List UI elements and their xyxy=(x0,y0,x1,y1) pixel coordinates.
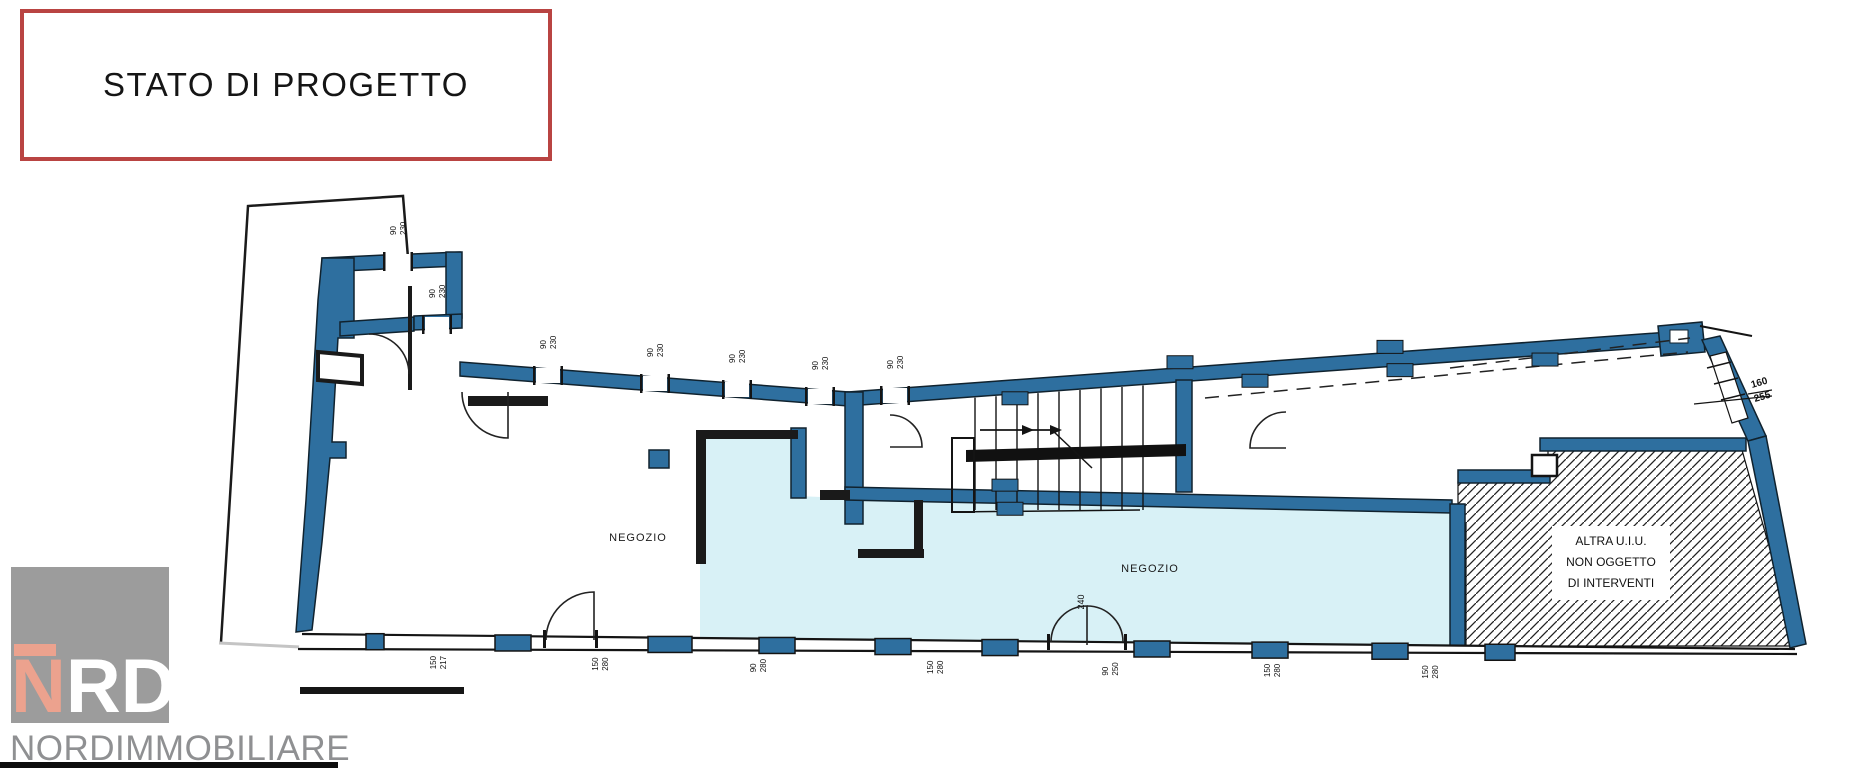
bottom-dimension-label: 150 xyxy=(429,655,438,669)
window-dimension-label: 90 xyxy=(389,226,398,235)
wall-pier xyxy=(992,479,1018,491)
wall-stairs-east xyxy=(1176,380,1192,492)
column-pillar xyxy=(649,450,669,468)
hatch-corner-pillar xyxy=(1532,455,1557,476)
room-label-negozio-left: NEGOZIO xyxy=(609,532,667,544)
door-jamb xyxy=(543,630,546,648)
window-dimension-label: 230 xyxy=(549,335,558,349)
bottom-wall-pillar xyxy=(366,634,384,650)
bottom-wall-pillar xyxy=(1252,642,1288,658)
window-tick xyxy=(750,380,753,399)
window-tick xyxy=(880,386,883,405)
window-tick xyxy=(908,386,911,405)
partition xyxy=(858,549,924,558)
window-dimension-label: 230 xyxy=(438,284,447,298)
window-tick xyxy=(411,252,414,271)
floor-plan: 160 255 xyxy=(0,0,1874,768)
wall-pier xyxy=(1532,353,1558,366)
wall-pier xyxy=(1002,392,1028,405)
window-dimension-label: 90 xyxy=(428,289,437,298)
bottom-dimension-labels: 1502171502809028015028090250150280150280 xyxy=(429,655,1440,678)
partition xyxy=(696,430,798,439)
bottom-wall-pillar xyxy=(1372,643,1408,659)
agency-logo: NRD xyxy=(11,567,169,723)
right-window-width: 160 xyxy=(1750,376,1769,391)
bottom-wall-pillar xyxy=(495,635,531,651)
door-jamb xyxy=(1124,634,1127,650)
wall-hatch-west xyxy=(1450,504,1465,646)
wall-niche xyxy=(318,352,362,384)
scan-artifact-bar xyxy=(0,762,338,768)
bottom-dimension-label: 150 xyxy=(591,657,600,671)
bottom-dimension-label: 150 xyxy=(1421,665,1430,679)
bottom-wall-pillar xyxy=(982,640,1018,656)
window-dimension-label: 90 xyxy=(646,348,655,357)
window-dimension-label: 90 xyxy=(728,354,737,363)
window-tick xyxy=(640,374,643,393)
window-dimension-label: 230 xyxy=(656,343,665,357)
window-tick xyxy=(561,366,564,385)
window-tick xyxy=(383,252,386,271)
window-opening xyxy=(386,254,410,269)
bottom-dimension-label: 250 xyxy=(1111,662,1120,676)
bottom-dimension-label: 280 xyxy=(936,660,945,674)
window-opening xyxy=(808,389,832,404)
other-unit-note: ALTRA U.I.U. NON OGGETTO DI INTERVENTI xyxy=(1552,526,1670,600)
logo-letters-rd: RD xyxy=(66,644,176,729)
window-opening xyxy=(883,388,907,403)
corner-notch xyxy=(1670,330,1688,343)
wall-pier xyxy=(1387,364,1413,377)
wall-wing-east xyxy=(446,252,462,318)
scan-artifact-bar xyxy=(300,687,464,694)
window-tick xyxy=(422,315,425,334)
note-line-2: NON OGGETTO xyxy=(1566,555,1656,569)
window-tick xyxy=(533,366,536,385)
bottom-dimension-label: 90 xyxy=(749,663,758,672)
wall-pier xyxy=(1377,340,1403,353)
logo-letter-n: N xyxy=(11,644,66,729)
window-opening xyxy=(536,368,560,383)
bottom-wall-pillar xyxy=(648,636,692,652)
door-dimension-label: 240 xyxy=(1076,594,1086,609)
bottom-dimension-label: 280 xyxy=(1431,665,1440,679)
note-line-1: ALTRA U.I.U. xyxy=(1575,534,1646,548)
window-dimension-label: 230 xyxy=(738,349,747,363)
window-tick xyxy=(805,387,808,406)
bottom-dimension-label: 280 xyxy=(601,657,610,671)
logo-acronym: NRD xyxy=(11,649,176,725)
door-jamb xyxy=(595,630,598,648)
bottom-wall-pillar xyxy=(1485,644,1515,660)
bottom-dimension-label: 90 xyxy=(1101,666,1110,675)
window-dimension-label: 230 xyxy=(399,221,408,235)
bottom-dimension-label: 217 xyxy=(439,655,448,669)
window-dimension-label: 90 xyxy=(539,340,548,349)
bottom-dimension-label: 280 xyxy=(1273,663,1282,677)
room-label-negozio-right: NEGOZIO xyxy=(1121,563,1179,575)
window-dimension-label: 230 xyxy=(821,356,830,370)
window-dimension-label: 90 xyxy=(811,361,820,370)
window-tick xyxy=(722,380,725,399)
partition xyxy=(696,430,706,564)
floor-plan-container: 160 255 xyxy=(0,0,1874,773)
window-opening xyxy=(425,317,449,332)
right-window-height: 255 xyxy=(1753,390,1772,405)
door-jamb xyxy=(1047,634,1050,650)
window-tick xyxy=(668,374,671,393)
wall-hatch-top-right xyxy=(1540,438,1746,451)
bottom-wall-pillar xyxy=(1134,641,1170,657)
window-opening xyxy=(725,382,749,397)
wall-stairblock-west xyxy=(845,392,863,524)
bottom-wall-pillar xyxy=(759,637,795,653)
wall-pier xyxy=(1167,356,1193,369)
partition xyxy=(820,490,850,500)
window-opening xyxy=(643,376,667,391)
wall-pier xyxy=(997,502,1023,515)
window-dimension-label: 90 xyxy=(886,360,895,369)
bottom-dimension-label: 150 xyxy=(1263,663,1272,677)
window-tick xyxy=(450,315,453,334)
window-tick xyxy=(833,387,836,406)
note-line-3: DI INTERVENTI xyxy=(1568,576,1654,590)
bottom-dimension-label: 280 xyxy=(759,658,768,672)
window-dimension-label: 230 xyxy=(896,355,905,369)
bottom-dimension-label: 150 xyxy=(926,660,935,674)
wall-pier xyxy=(1242,374,1268,387)
bottom-wall-pillar xyxy=(875,639,911,655)
